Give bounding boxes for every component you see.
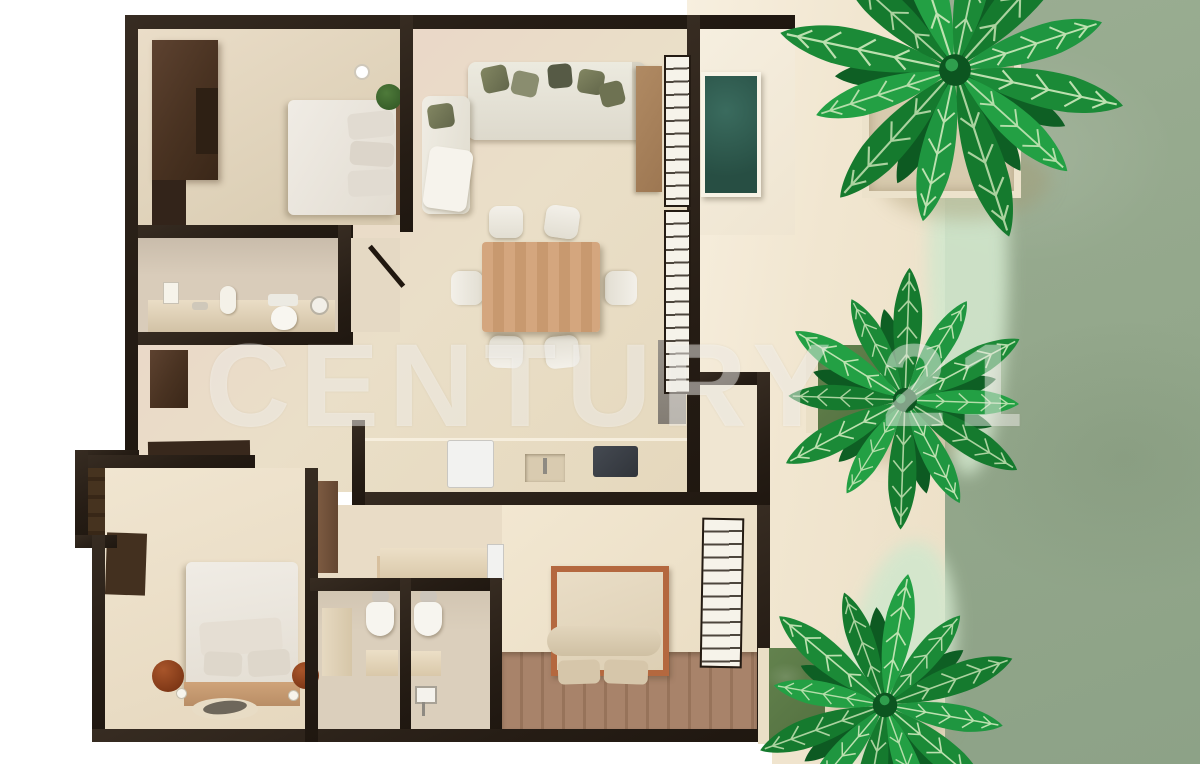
bedroom3-pillow (558, 659, 601, 684)
wall-bedroom2-north (88, 455, 255, 468)
toilet-tank (268, 294, 298, 306)
hall-closet-niche (150, 350, 188, 408)
bedroom1-pillow (347, 110, 395, 141)
wall-notch-left (75, 450, 88, 548)
bathroom-a-vanity (366, 650, 398, 676)
chaise-cushion (426, 102, 455, 129)
corner-plant (376, 84, 402, 110)
sofa-cushion (480, 64, 511, 95)
bedroom1-pillow (347, 169, 394, 197)
bathroom-a-bench (322, 608, 352, 676)
dining-chair (605, 271, 637, 305)
lower-hall-counter (380, 548, 495, 580)
bedroom2-closet-strip (318, 481, 338, 573)
palm-tree-bottom (685, 505, 1085, 764)
wall-left-lower (92, 535, 105, 742)
bathroom-b-toilet (414, 602, 442, 636)
wall-bathrooms-east (490, 578, 502, 729)
candle (288, 690, 299, 701)
wall-bedroom2-east (305, 468, 318, 742)
wall-left-upper (125, 15, 138, 463)
wall-bathroom-divider (400, 578, 411, 729)
dining-chair (543, 204, 581, 240)
sink-faucet (543, 458, 547, 474)
shower-pipe (422, 702, 425, 716)
dining-chair (489, 206, 523, 238)
floor-plan-render: CENTURY 21 (0, 0, 1200, 764)
shower-head (415, 686, 437, 704)
bedroom1-wardrobe-recess (196, 88, 218, 154)
wall-bedroom1-south (138, 225, 353, 238)
candle (176, 688, 187, 699)
plunge-pool (701, 72, 761, 197)
vanity-lamp (163, 282, 179, 304)
towel-cylinder (220, 286, 236, 314)
bottom-margin (0, 742, 772, 764)
bedroom1-pillow (349, 140, 395, 167)
ceiling-light (354, 64, 370, 80)
century21-watermark: CENTURY 21 (205, 318, 1033, 454)
bedroom3-pillow (604, 659, 649, 685)
bathroom-b-vanity (411, 651, 441, 676)
bedroom2-pillow (203, 651, 242, 677)
bedroom2-pillow (247, 649, 291, 678)
dining-chair (451, 271, 483, 305)
towel-roll (310, 296, 329, 315)
toiletries (192, 302, 208, 310)
sofa-cushion (510, 70, 540, 99)
louvered-glass-panel (664, 55, 691, 207)
wood-console (636, 66, 662, 192)
lower-hall-appliance (487, 544, 504, 580)
bathroom-a-toilet (366, 602, 394, 636)
sofa-cushion (547, 63, 573, 89)
bedroom3-blanket-roll (547, 626, 661, 656)
wall-bottom (92, 729, 770, 742)
sofa-blanket (422, 145, 474, 213)
wall-bedroom1-divider (400, 15, 413, 232)
terracotta-stool (152, 660, 184, 692)
bedroom1-cabinet (152, 180, 186, 225)
